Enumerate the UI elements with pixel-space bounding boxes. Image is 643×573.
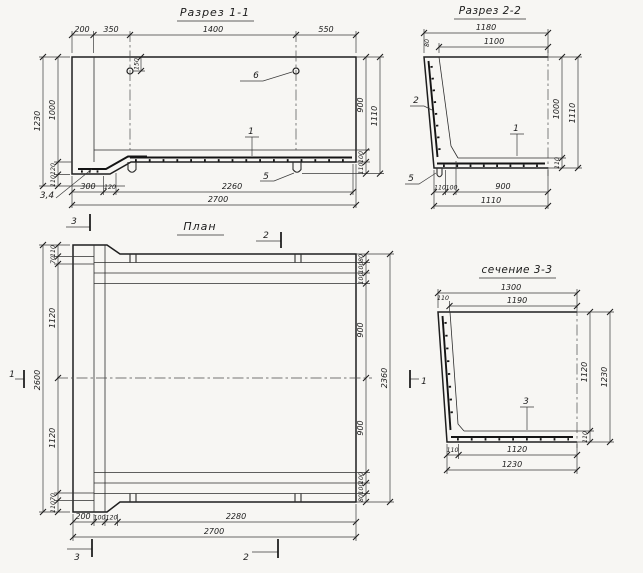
leader-lines-1-1 [56, 72, 294, 198]
dim-100-rb2: 100 [358, 482, 365, 494]
cut-marker-2-bottom: 2 [243, 553, 249, 563]
dim-550: 550 [318, 25, 333, 34]
leader-lines-3-3 [520, 407, 534, 430]
plan-inner-lines [73, 245, 356, 512]
dim-900-rb: 900 [356, 420, 365, 435]
dim-110-lb: 110 [50, 501, 57, 513]
item-label-5: 5 [263, 172, 269, 182]
item-label-5-22: 5 [408, 174, 414, 184]
panel-inner-lines-1-1 [94, 57, 356, 162]
section-2-2-view: Разрез 2-2 1180 1100 80 1000 110 1110 11… [405, 5, 582, 209]
item-label-1-22: 1 [513, 124, 519, 134]
item-label-2-22: 2 [413, 96, 419, 106]
dim-110-bottom-2-2: 110 [434, 185, 446, 192]
dim-1110-bottom-2-2: 1110 [481, 196, 501, 205]
dim-2360: 2360 [380, 368, 389, 388]
dim-1230-bottom-3-3: 1230 [502, 460, 522, 469]
dim-2600: 2600 [33, 370, 42, 390]
dim-1100: 1100 [484, 37, 504, 46]
section-3-3-title: сечение 3-3 [481, 264, 552, 276]
dimension-ticks-plan [40, 242, 393, 540]
panel-inner-lines-2-2 [439, 57, 548, 158]
item-label-1: 1 [248, 127, 254, 137]
plan-outline [73, 245, 356, 512]
dim-100-rt1: 100 [358, 261, 365, 273]
dim-1120-lt: 1120 [48, 308, 57, 328]
section-1-1-title: Разрез 1-1 [180, 6, 250, 19]
lifting-loop-2-2 [437, 168, 442, 177]
dim-70-lt: 70 [50, 256, 57, 264]
dim-2700-plan: 2700 [204, 527, 224, 536]
panel-outline-2-2 [424, 57, 548, 168]
cut-marker-1-left: 1 [9, 370, 15, 380]
section-2-2-title: Разрез 2-2 [459, 5, 522, 17]
dim-110-right-2-2: 110 [554, 157, 561, 169]
panel-inner-lines-3-3 [450, 312, 577, 431]
section-1-1-view: Разрез 1-1 200 350 1400 550 150 1230 100… [33, 6, 384, 208]
wall-mesh-3-3 [443, 316, 451, 430]
dim-80: 80 [424, 39, 431, 47]
dim-120-plan: 120 [105, 515, 117, 522]
plan-view: План 3 2 3 2 1 1 2600 110 70 1120 1120 7… [9, 214, 427, 563]
leader-lines-2-2 [405, 106, 524, 184]
cut-marker-3-top: 3 [71, 217, 77, 227]
dim-120-bottom: 120 [104, 184, 116, 191]
dim-900-right: 900 [356, 97, 365, 112]
section-3-3-view: сечение 3-3 1300 1190 110 1120 110 1230 … [435, 264, 614, 474]
lifting-loops-5 [128, 162, 301, 172]
dim-100-bottom-2-2: 100 [445, 185, 457, 192]
dim-1180: 1180 [476, 23, 496, 32]
dim-1000-2-2: 1000 [552, 99, 561, 119]
extension-lines-plan [39, 245, 394, 541]
drawing-sheet: Разрез 1-1 200 350 1400 550 150 1230 100… [0, 0, 643, 573]
dim-110-right: 110 [358, 162, 365, 174]
drawing-canvas: Разрез 1-1 200 350 1400 550 150 1230 100… [0, 0, 643, 573]
panel-outline-3-3 [438, 312, 577, 442]
dim-1000: 1000 [48, 100, 57, 120]
item-label-3-4: 3,4 [40, 191, 55, 201]
dim-1300: 1300 [501, 283, 521, 292]
dim-120-left: 120 [50, 163, 57, 175]
dim-1120-bottom-3-3: 1120 [507, 445, 527, 454]
dim-1120-lb: 1120 [48, 428, 57, 448]
cut-marker-3-bottom: 3 [74, 553, 80, 563]
dim-900-2-2: 900 [495, 182, 510, 191]
dim-80-rt: 80 [358, 254, 365, 262]
dim-200: 200 [74, 25, 89, 34]
dim-80-rb: 80 [358, 494, 365, 502]
plan-title: План [183, 220, 216, 233]
dim-110-bottom-3-3: 110 [446, 447, 458, 454]
dim-2280: 2280 [226, 512, 246, 521]
dim-1110-2-2: 1110 [568, 103, 577, 123]
dim-900-rt: 900 [356, 322, 365, 337]
hole-centerlines [130, 31, 296, 150]
dim-150-hole: 150 [134, 58, 141, 70]
dim-1230: 1230 [33, 111, 42, 131]
dim-200-plan: 200 [75, 512, 90, 521]
dim-350: 350 [103, 25, 118, 34]
dim-1190: 1190 [507, 296, 527, 305]
dim-300: 300 [80, 182, 95, 191]
cut-marker-ticks [24, 214, 410, 558]
dim-110-top-3-3: 110 [437, 295, 449, 302]
dim-1120-right-3-3: 1120 [580, 362, 589, 382]
item-label-6: 6 [253, 71, 259, 81]
dim-1400: 1400 [203, 25, 223, 34]
dim-110-right-3-3: 110 [582, 431, 589, 443]
dim-100-plan: 100 [93, 515, 105, 522]
dim-1230-right-3-3: 1230 [600, 367, 609, 387]
cut-marker-1-right: 1 [421, 377, 427, 387]
item-label-3-33: 3 [523, 397, 529, 407]
dim-2700: 2700 [208, 195, 228, 204]
dim-100-right: 100 [358, 151, 365, 163]
cut-marker-2-top: 2 [263, 231, 269, 241]
dim-110-left: 110 [50, 175, 57, 187]
dim-1110-right: 1110 [370, 106, 379, 126]
dim-70-lb: 70 [50, 493, 57, 501]
dim-100-rb1: 100 [358, 472, 365, 484]
dim-100-rt2: 100 [358, 272, 365, 284]
dim-2260: 2260 [222, 182, 242, 191]
panel-outline-1-1 [72, 57, 356, 174]
dim-110-lt: 110 [50, 245, 57, 257]
dimension-lines-1-1 [43, 35, 380, 205]
